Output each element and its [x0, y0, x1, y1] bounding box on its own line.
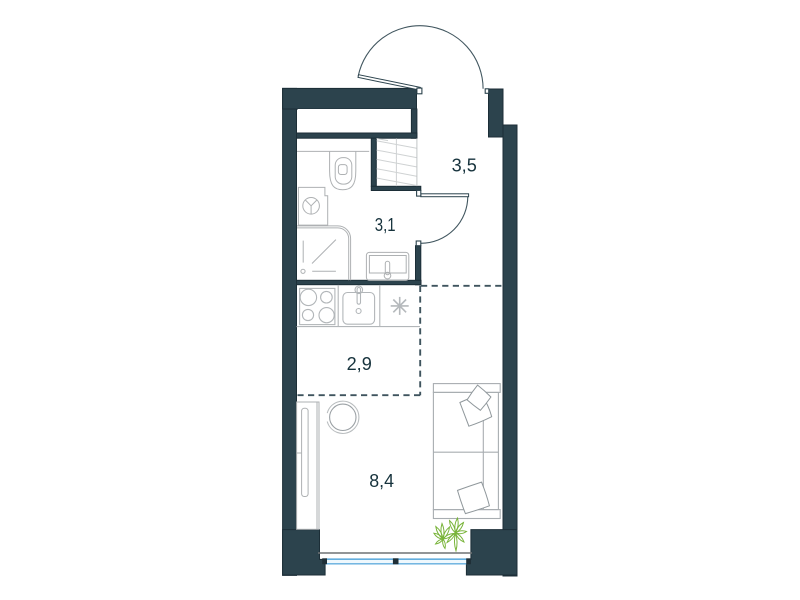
svg-text:2,9: 2,9 [347, 354, 372, 374]
svg-text:8,4: 8,4 [369, 471, 394, 491]
svg-text:3,5: 3,5 [452, 156, 477, 176]
svg-text:3,1: 3,1 [375, 215, 396, 235]
